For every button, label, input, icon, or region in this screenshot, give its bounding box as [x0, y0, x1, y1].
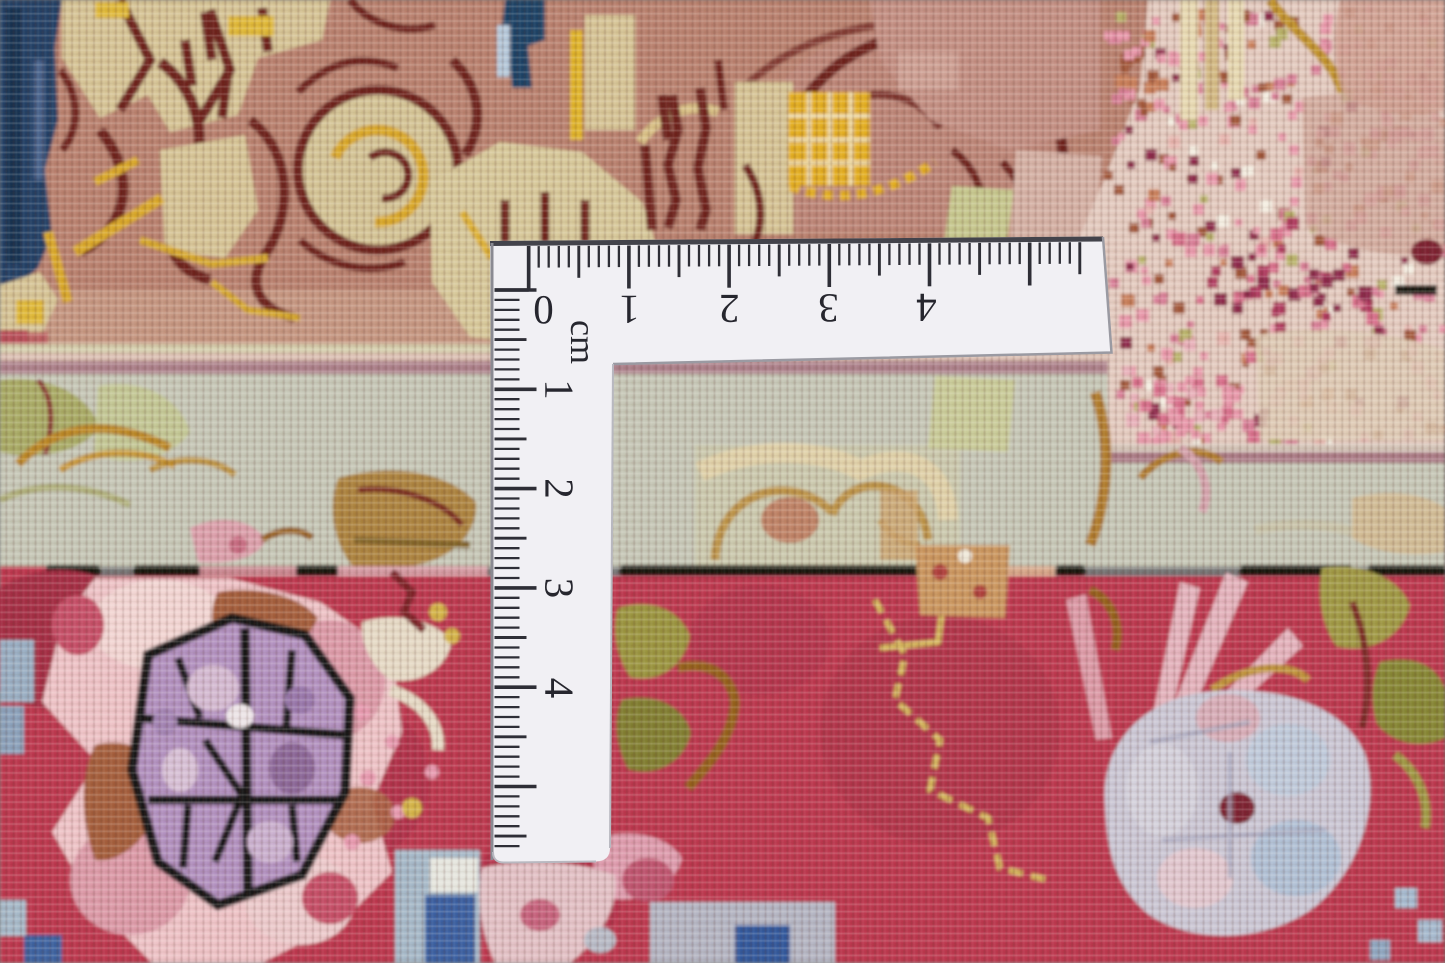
svg-text:2: 2 [537, 478, 583, 499]
svg-text:0: 0 [533, 288, 554, 334]
svg-text:cm: cm [563, 320, 603, 364]
svg-text:3: 3 [818, 286, 839, 332]
svg-text:1: 1 [619, 287, 640, 333]
svg-text:4: 4 [916, 285, 937, 331]
svg-text:3: 3 [537, 578, 583, 599]
svg-text:2: 2 [719, 286, 740, 332]
svg-text:4: 4 [537, 678, 583, 699]
svg-text:1: 1 [537, 379, 583, 400]
